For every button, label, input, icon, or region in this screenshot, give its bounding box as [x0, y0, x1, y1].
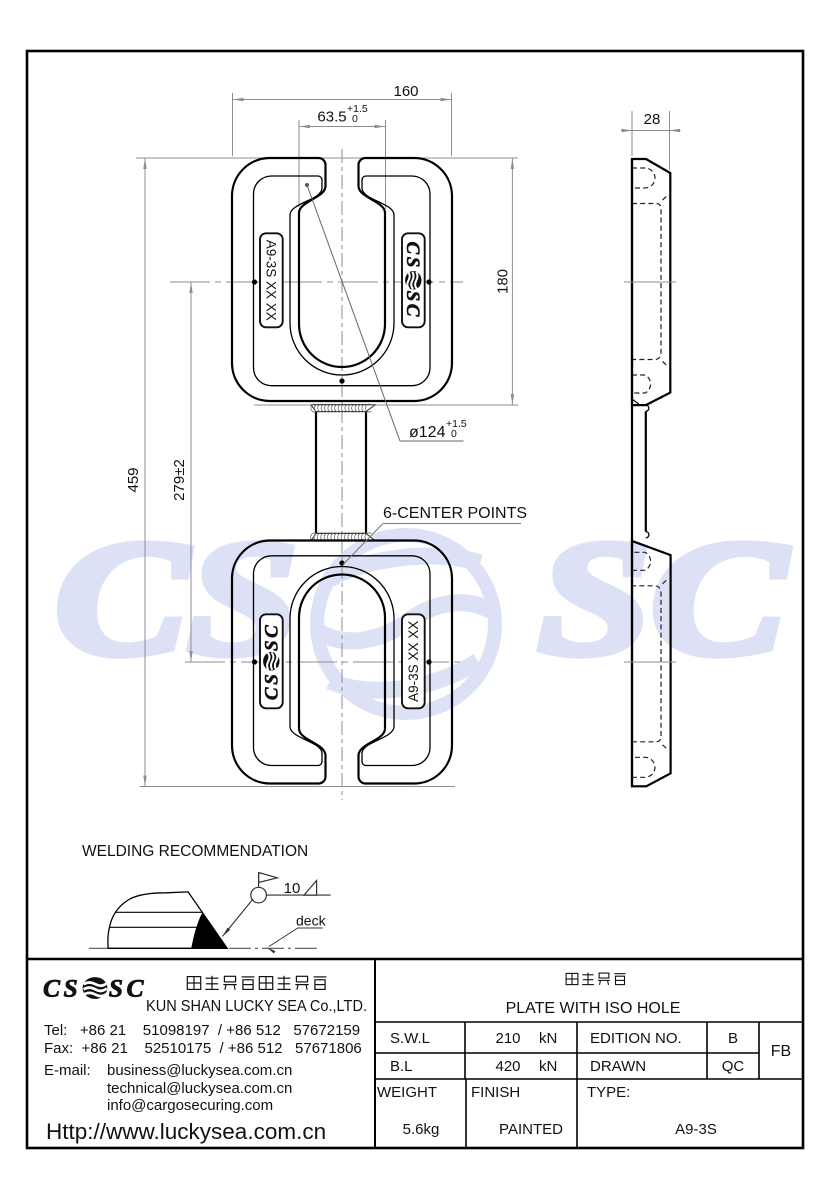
svg-text:kN: kN: [539, 1058, 557, 1075]
svg-text:SC: SC: [402, 291, 423, 320]
svg-text:SC: SC: [109, 974, 147, 1003]
svg-text:6-CENTER POINTS: 6-CENTER POINTS: [383, 505, 527, 522]
svg-text:Http://www.luckysea.com.cn: Http://www.luckysea.com.cn: [46, 1119, 326, 1144]
svg-text:CS: CS: [402, 242, 423, 271]
svg-text:160: 160: [393, 83, 418, 100]
svg-text:FB: FB: [771, 1043, 791, 1060]
svg-text:B.L: B.L: [390, 1058, 413, 1075]
svg-text:B: B: [728, 1030, 738, 1047]
svg-text:10: 10: [284, 880, 301, 897]
svg-text:CS: CS: [43, 974, 81, 1003]
svg-text:business@luckysea.com.cn: business@luckysea.com.cn: [107, 1062, 292, 1079]
svg-text:5.6kg: 5.6kg: [403, 1121, 440, 1138]
svg-text:TYPE:: TYPE:: [587, 1084, 630, 1101]
svg-text:PLATE WITH ISO HOLE: PLATE WITH ISO HOLE: [506, 1000, 681, 1017]
svg-text:A9-3S: A9-3S: [675, 1121, 717, 1138]
svg-text:ø124: ø124: [409, 424, 446, 441]
svg-text:WELDING RECOMMENDATION: WELDING RECOMMENDATION: [82, 843, 308, 860]
svg-text:0: 0: [451, 428, 457, 440]
svg-text:A9-3S XX XX: A9-3S XX XX: [406, 621, 421, 702]
svg-text:deck: deck: [296, 913, 327, 929]
svg-text:technical@luckysea.com.cn: technical@luckysea.com.cn: [107, 1080, 292, 1097]
svg-text:0: 0: [352, 113, 358, 125]
svg-text:28: 28: [644, 111, 661, 128]
svg-text:180: 180: [495, 269, 512, 294]
svg-text:Fax: +86 21 52510175 / +8: Fax: +86 21 52510175 / +86 512 57671806: [44, 1040, 362, 1057]
svg-text:Tel: +86 21 51098197 / +: Tel: +86 21 51098197 / +86 512 57672159: [44, 1022, 360, 1039]
svg-text:420: 420: [495, 1058, 520, 1075]
svg-text:63.5: 63.5: [317, 109, 346, 126]
svg-text:459: 459: [125, 467, 142, 492]
svg-text:kN: kN: [539, 1030, 557, 1047]
svg-text:SC: SC: [262, 623, 283, 652]
svg-text:FINISH: FINISH: [471, 1084, 520, 1101]
svg-text:EDITION NO.: EDITION NO.: [590, 1030, 682, 1047]
svg-text:info@cargosecuring.com: info@cargosecuring.com: [107, 1097, 273, 1114]
svg-text:PAINTED: PAINTED: [499, 1121, 563, 1138]
svg-text:210: 210: [495, 1030, 520, 1047]
svg-text:QC: QC: [722, 1058, 745, 1075]
svg-text:DRAWN: DRAWN: [590, 1058, 646, 1075]
svg-text:WEIGHT: WEIGHT: [377, 1084, 437, 1101]
svg-text:KUN SHAN LUCKY SEA Co.,LTD.: KUN SHAN LUCKY SEA Co.,LTD.: [146, 998, 367, 1015]
svg-text:CS: CS: [262, 672, 283, 701]
svg-text:E-mail:: E-mail:: [44, 1062, 91, 1079]
svg-text:S.W.L: S.W.L: [390, 1030, 430, 1047]
svg-text:A9-3S XX XX: A9-3S XX XX: [264, 240, 279, 321]
svg-text:279±2: 279±2: [171, 459, 188, 501]
